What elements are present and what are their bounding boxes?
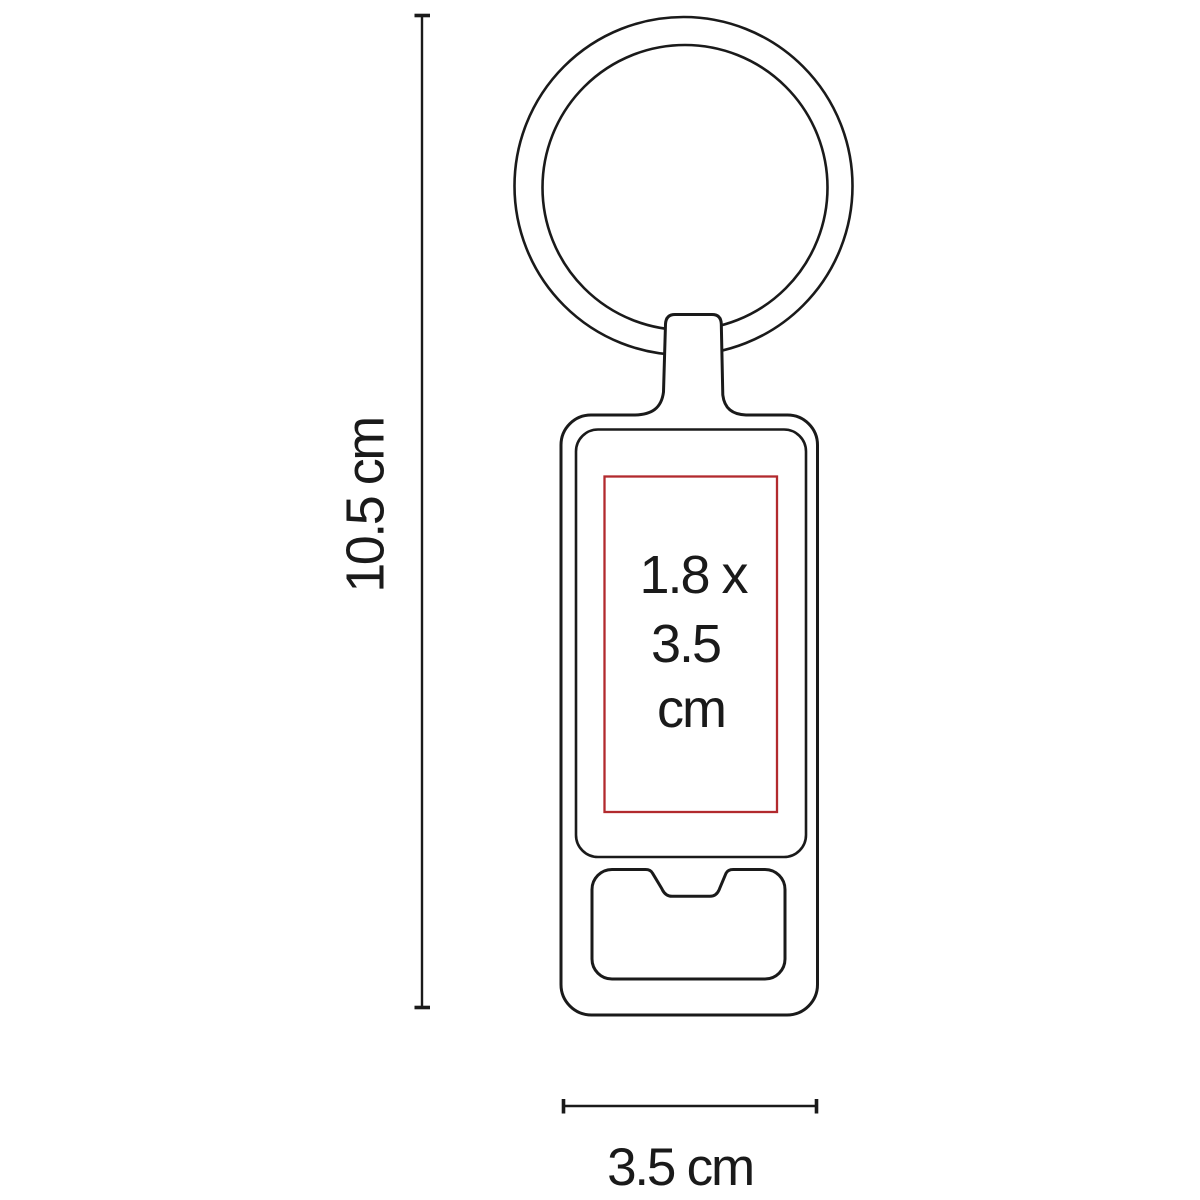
svg-text:1.8 x: 1.8 x xyxy=(639,545,748,605)
svg-text:3.5 cm: 3.5 cm xyxy=(607,1138,753,1197)
svg-text:3.5: 3.5 xyxy=(651,614,720,674)
svg-text:cm: cm xyxy=(657,679,725,739)
svg-text:10.5 cm: 10.5 cm xyxy=(336,418,396,593)
